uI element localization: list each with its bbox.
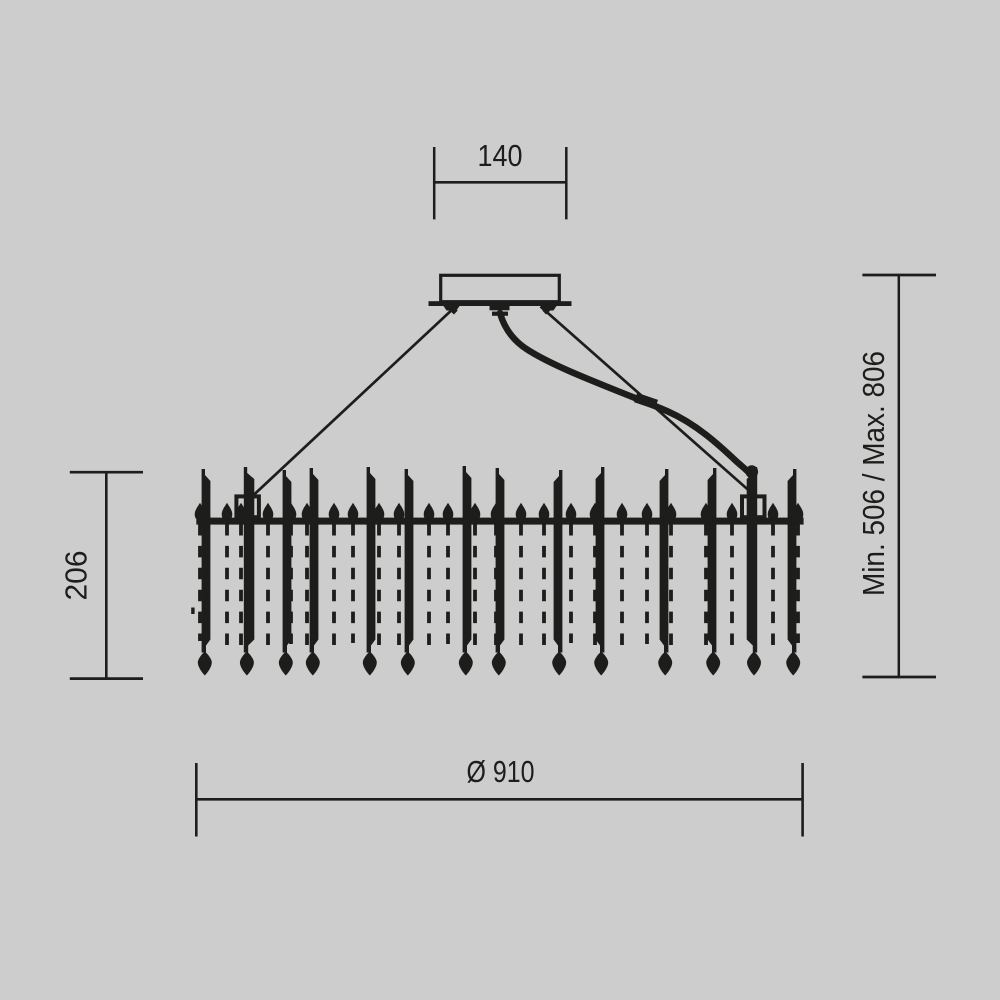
svg-text:Min. 506 / Max. 806: Min. 506 / Max. 806 <box>857 351 891 596</box>
svg-text:140: 140 <box>478 139 523 173</box>
svg-text:206: 206 <box>60 551 94 601</box>
svg-text:Ø 910: Ø 910 <box>467 755 535 789</box>
